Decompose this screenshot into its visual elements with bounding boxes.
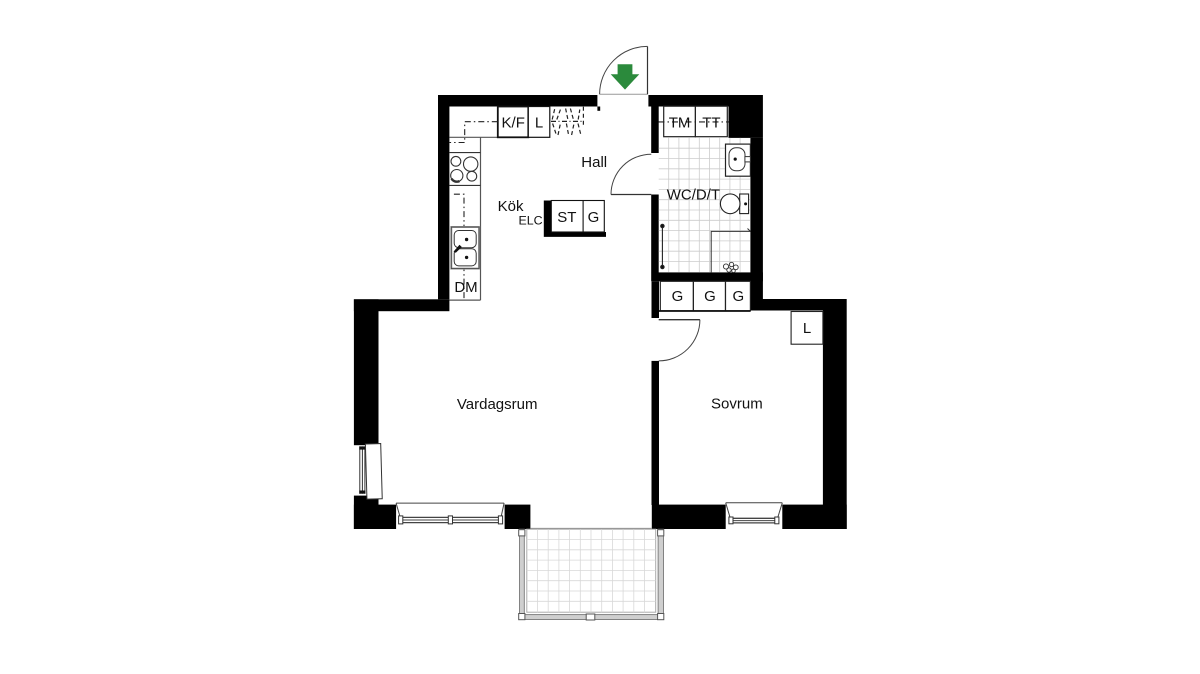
svg-text:DM: DM [454, 279, 477, 296]
svg-text:G: G [672, 288, 684, 305]
svg-text:L: L [803, 320, 811, 337]
svg-text:Sovrum: Sovrum [711, 396, 763, 413]
svg-text:ELC: ELC [518, 213, 542, 227]
svg-text:TT: TT [702, 115, 720, 132]
svg-text:K/F: K/F [502, 114, 525, 131]
svg-text:Hall: Hall [581, 154, 607, 171]
svg-text:ST: ST [557, 209, 576, 226]
svg-text:Vardagsrum: Vardagsrum [457, 396, 538, 413]
svg-text:G: G [732, 288, 744, 305]
svg-text:G: G [588, 209, 600, 226]
svg-text:L: L [535, 114, 543, 131]
svg-text:G: G [704, 288, 716, 305]
svg-text:WC/D/T: WC/D/T [667, 187, 720, 204]
svg-text:TM: TM [669, 115, 691, 132]
